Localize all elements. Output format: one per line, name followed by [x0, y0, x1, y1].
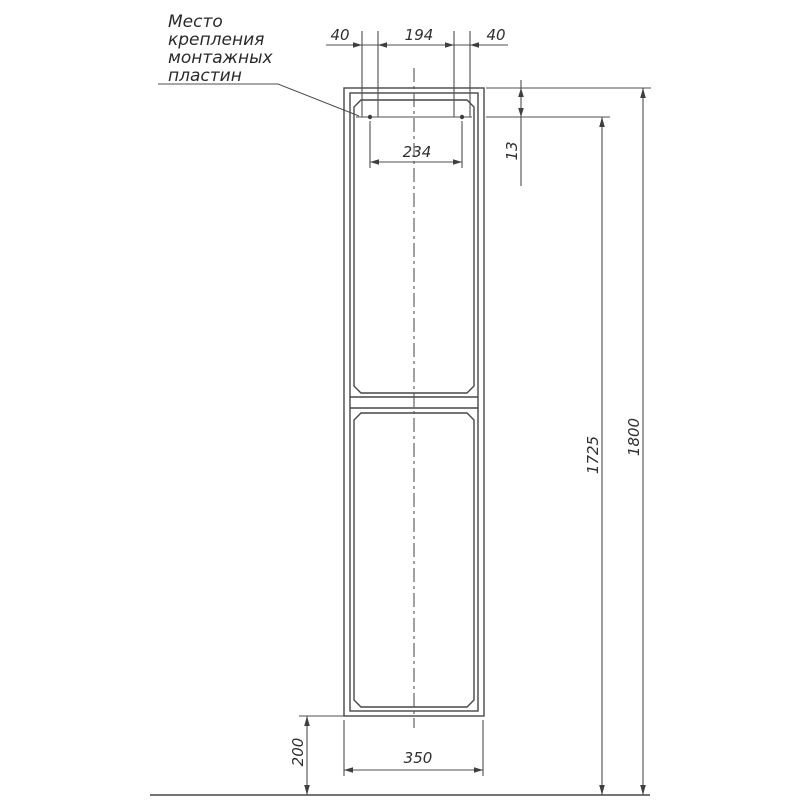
arrowhead [453, 159, 462, 165]
arrowhead [344, 767, 353, 773]
mounting-point-right-dot [460, 115, 464, 119]
note-line-4: пластин [168, 66, 242, 86]
dim-value-350: 350 [404, 749, 433, 767]
dim-value-1725: 1725 [584, 436, 602, 474]
dimension-plate-centers-234: 234 [370, 121, 462, 168]
arrowhead [304, 716, 310, 726]
arrowhead [474, 767, 483, 773]
dimension-overall-height-1800: 1800 [486, 88, 651, 795]
note-line-3: монтажных [168, 48, 274, 68]
arrowhead [353, 42, 362, 48]
arrowhead [470, 42, 479, 48]
dim-value-234: 234 [403, 143, 432, 161]
arrowhead [445, 42, 454, 48]
arrowhead [518, 88, 524, 97]
dim-value-1800: 1800 [625, 418, 643, 456]
dimension-width-350: 350 [344, 720, 483, 776]
dimension-mount-line-height-1725: 1725 [486, 117, 610, 795]
mounting-plate-note: Место крепления монтажных пластин [158, 12, 359, 116]
dimension-top-inset-13: 13 [503, 80, 524, 186]
dimension-top-plate-offsets: 40 194 40 [326, 26, 508, 117]
note-leader-line [158, 84, 359, 116]
dim-value-200: 200 [289, 738, 307, 767]
technical-drawing-canvas: Место крепления монтажных пластин 40 194… [0, 0, 800, 800]
dim-value-40-right: 40 [486, 26, 505, 44]
arrowhead [599, 117, 605, 127]
arrowhead [518, 108, 524, 117]
dim-value-194: 194 [405, 26, 434, 44]
mounting-point-left-dot [368, 115, 372, 119]
arrowhead [640, 88, 646, 98]
note-line-2: крепления [168, 30, 264, 50]
cabinet-dimension-drawing: Место крепления монтажных пластин 40 194… [0, 0, 800, 800]
arrowhead [378, 42, 387, 48]
dim-value-40-left: 40 [330, 26, 349, 44]
arrowhead [599, 785, 605, 795]
dim-value-13: 13 [503, 141, 521, 160]
arrowhead [304, 785, 310, 795]
arrowhead [370, 159, 379, 165]
arrowhead [640, 785, 646, 795]
dimension-floor-clearance-200: 200 [289, 716, 344, 795]
note-line-1: Место [168, 12, 223, 32]
